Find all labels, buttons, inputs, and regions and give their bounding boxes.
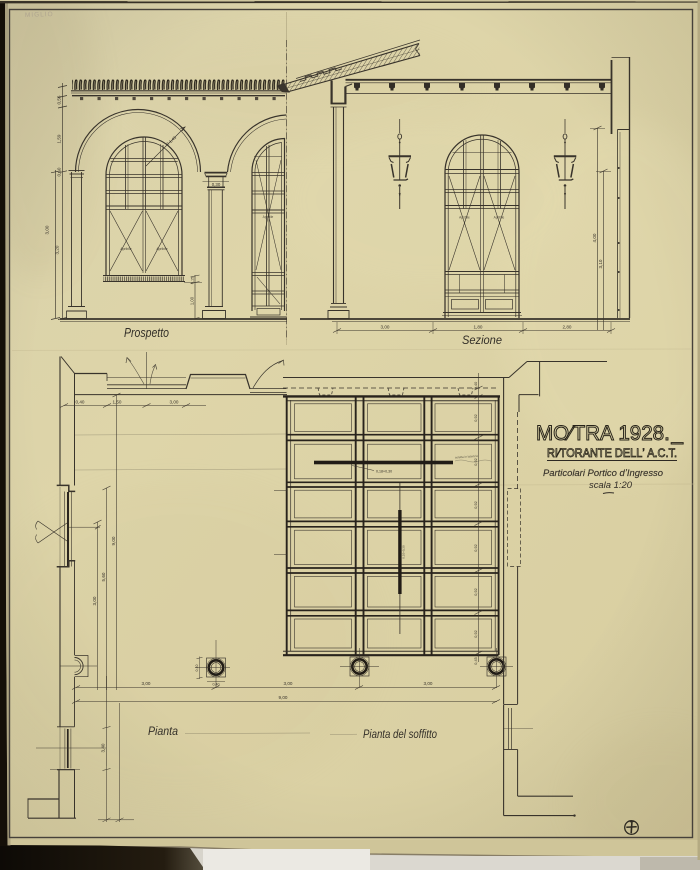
svg-text:3,00: 3,00 [424, 681, 433, 686]
svg-text:Particolari Portico dʼIngresso: Particolari Portico dʼIngresso [543, 468, 664, 479]
svg-text:3,40: 3,40 [101, 743, 106, 752]
svg-text:3,00: 3,00 [142, 681, 151, 686]
svg-text:0,92: 0,92 [474, 501, 478, 508]
svg-text:3,00: 3,00 [284, 681, 293, 686]
svg-text:Apribile: Apribile [120, 247, 131, 251]
svg-text:Apribile: Apribile [494, 216, 505, 220]
svg-text:0,40: 0,40 [76, 400, 85, 405]
svg-text:0,45: 0,45 [474, 657, 478, 664]
svg-text:1,80: 1,80 [474, 325, 483, 330]
svg-text:0,40: 0,40 [474, 382, 478, 389]
svg-text:1,59: 1,59 [57, 134, 62, 143]
svg-text:0,92: 0,92 [474, 414, 478, 421]
svg-text:2,80: 2,80 [563, 325, 572, 330]
svg-text:0,10×0,20: 0,10×0,20 [402, 545, 406, 559]
svg-text:Apribile: Apribile [156, 247, 167, 251]
svg-text:0,92: 0,92 [474, 588, 478, 595]
svg-text:1,00: 1,00 [190, 296, 195, 305]
svg-text:9,00: 9,00 [279, 695, 288, 700]
svg-text:4,00: 4,00 [592, 233, 597, 242]
svg-text:Apribile: Apribile [459, 216, 470, 220]
svg-text:0,55: 0,55 [57, 95, 62, 104]
svg-text:Prospetto: Prospetto [124, 325, 169, 340]
svg-text:0,40: 0,40 [195, 665, 199, 672]
svg-text:0,92: 0,92 [474, 630, 478, 637]
svg-text:3,00: 3,00 [170, 400, 179, 405]
svg-text:3,00: 3,00 [381, 325, 390, 330]
svg-text:MIGLIO: MIGLIO [25, 11, 54, 19]
svg-text:9,00: 9,00 [111, 536, 116, 545]
svg-text:3,20: 3,20 [55, 245, 60, 254]
svg-text:0,92: 0,92 [474, 458, 478, 465]
svg-text:RI∕TORANTE DELLʼ A.C.T.: RI∕TORANTE DELLʼ A.C.T. [547, 446, 677, 460]
svg-text:5,60: 5,60 [101, 572, 106, 581]
svg-text:scala 1:20: scala 1:20 [589, 480, 633, 491]
svg-text:0,92: 0,92 [474, 544, 478, 551]
svg-text:3,10: 3,10 [598, 259, 603, 268]
svg-text:Pianta del soffitto: Pianta del soffitto [363, 729, 437, 741]
svg-text:Apribile: Apribile [263, 215, 274, 219]
svg-text:MO∕TRA 1928. _: MO∕TRA 1928. _ [536, 422, 683, 445]
svg-text:Pianta: Pianta [148, 724, 178, 738]
svg-text:1,50: 1,50 [113, 400, 122, 405]
svg-text:0,30: 0,30 [212, 182, 221, 187]
svg-text:3,00: 3,00 [45, 225, 50, 234]
svg-text:0,18×0,30: 0,18×0,30 [376, 470, 392, 474]
svg-text:Sezione: Sezione [462, 333, 502, 347]
svg-text:3,00: 3,00 [92, 596, 97, 605]
svg-text:0,10: 0,10 [57, 167, 62, 176]
svg-text:0,15: 0,15 [191, 277, 195, 284]
